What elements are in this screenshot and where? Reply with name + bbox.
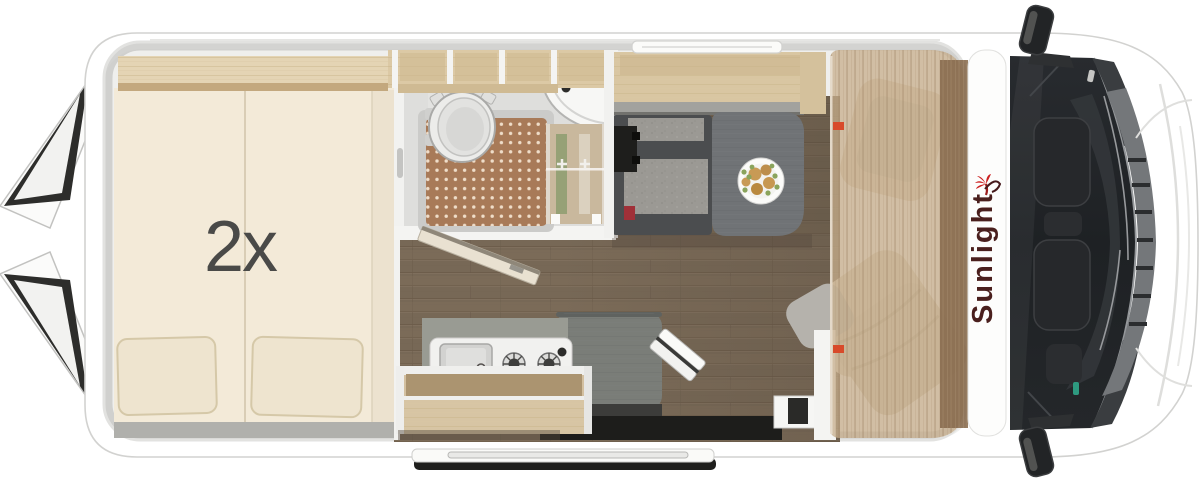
svg-text:Sunlight: Sunlight — [967, 192, 999, 324]
svg-text:2x: 2x — [204, 207, 278, 287]
